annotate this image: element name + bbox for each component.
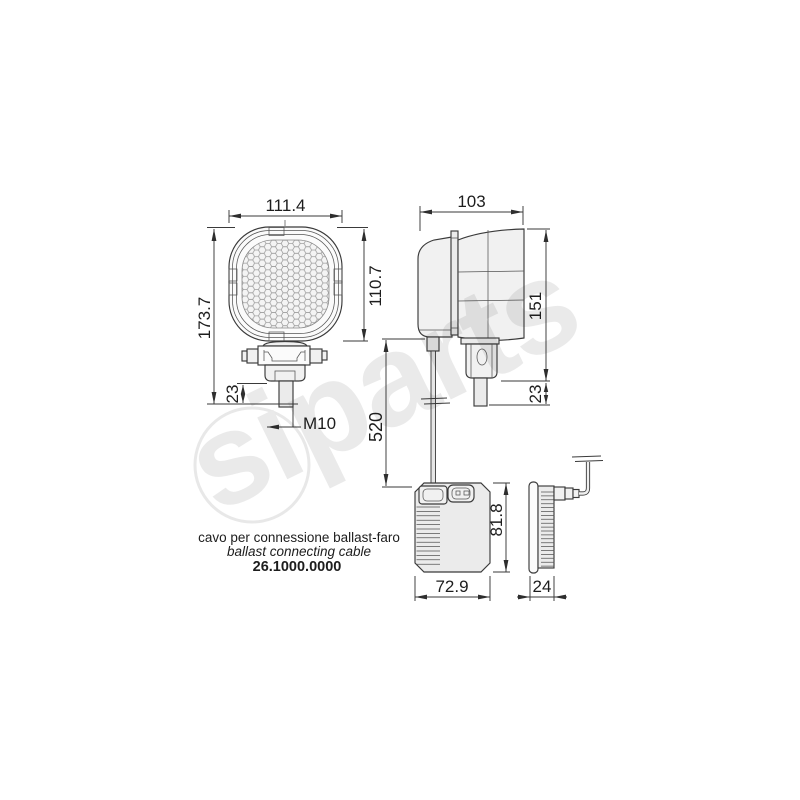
technical-drawing: 111.4 173.7 110.7 23 M10 103 151	[0, 0, 800, 800]
page: 111.4 173.7 110.7 23 M10 103 151	[0, 0, 800, 800]
dim-front-width: 111.4	[229, 196, 342, 223]
dim-front-width-label: 111.4	[265, 196, 305, 215]
output-cable-break-symbol	[572, 456, 603, 462]
dim-ballast-width-label: 72.9	[435, 577, 468, 596]
dim-ballast-width: 72.9	[415, 576, 490, 601]
bar-knob-left	[247, 349, 258, 363]
ballast-front-view	[415, 483, 490, 572]
side-cable-connector-2	[565, 488, 573, 499]
dim-lens-height-label: 110.7	[366, 265, 385, 306]
bar-tip-left	[242, 351, 247, 361]
ballast-output-cable-outline	[579, 462, 588, 494]
side-cable-connector-3	[573, 490, 579, 498]
dim-side-depth: 103	[420, 192, 523, 231]
dim-total-height-label: 173.7	[195, 297, 214, 340]
part-number: 26.1000.0000	[253, 559, 342, 575]
dim-ballast-depth: 24	[517, 576, 567, 601]
ballast-mount-plate	[529, 482, 538, 573]
dim-side-depth-label: 103	[457, 192, 485, 211]
lamp-lens-honeycomb	[242, 240, 329, 328]
caption-english: ballast connecting cable	[227, 544, 371, 559]
ballast-side-view	[529, 456, 603, 573]
dim-ballast-height-label: 81.8	[487, 503, 506, 536]
side-cable-connector-1	[554, 487, 565, 500]
dim-ballast-depth-label: 24	[533, 577, 552, 596]
